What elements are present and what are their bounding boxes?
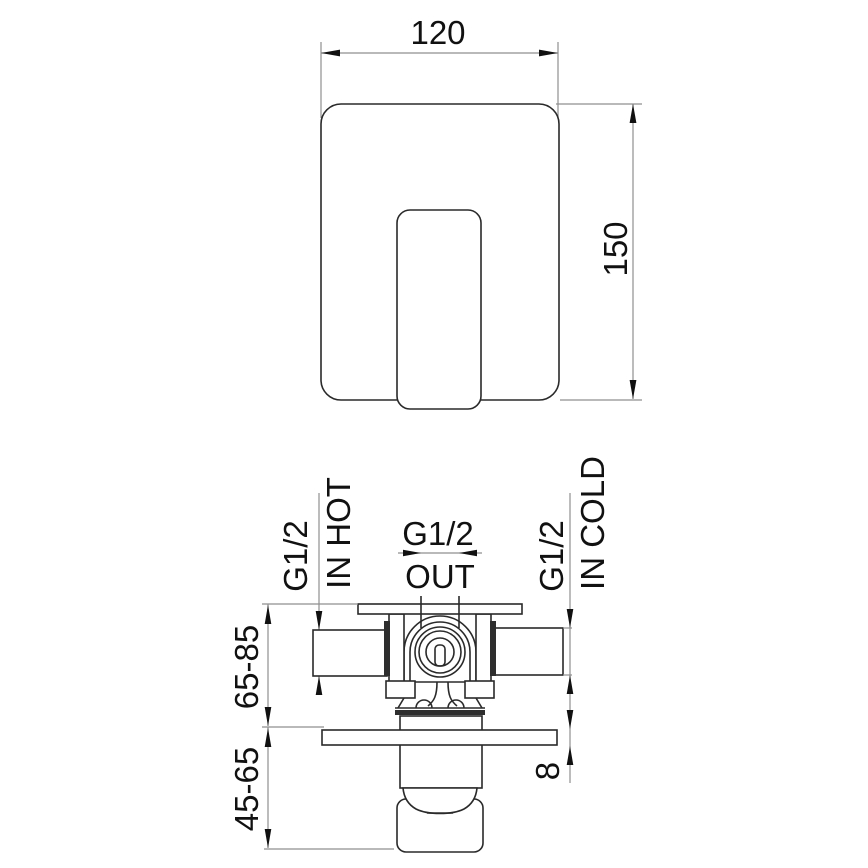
arrowhead-down	[265, 707, 272, 726]
flare-edge-left	[398, 698, 404, 708]
connection-nut-left	[384, 621, 390, 676]
bracket-foot-right	[465, 681, 494, 698]
arrowhead-down	[265, 829, 272, 848]
width-dim-label: 120	[410, 14, 465, 51]
top-view: 120 150	[321, 14, 642, 409]
arrowhead-up	[316, 676, 323, 695]
hot-inlet-label: IN HOT	[320, 477, 357, 589]
connection-nut-right	[490, 621, 496, 676]
cold-inlet-pipe	[494, 628, 563, 675]
cartridge-ring-inner	[426, 638, 454, 666]
bracket-left	[389, 614, 404, 682]
cold-inlet-label: IN COLD	[574, 456, 611, 590]
outlet-thread-label: G1/2	[402, 515, 474, 552]
scallop-right	[448, 700, 464, 708]
install-depth-label: 65-85	[228, 625, 265, 709]
dim-height: 150	[556, 104, 642, 400]
bracket-foot-left	[386, 681, 415, 698]
outlet-label: OUT	[405, 558, 475, 595]
arrowhead-down	[316, 611, 323, 630]
wall-plate-section	[322, 730, 557, 745]
trim-depth-label: 45-65	[228, 747, 265, 831]
mounting-plate	[358, 604, 522, 614]
collar-band	[395, 710, 485, 715]
arrowhead-up	[567, 675, 574, 694]
lever-handle-outline	[397, 210, 481, 409]
bracket-right	[476, 614, 491, 682]
arrowhead-down	[567, 609, 574, 628]
trim-sleeve	[400, 716, 482, 788]
bottom-view: G1/2 IN HOT G1/2 OUT G1/2 IN COLD 8	[228, 456, 611, 852]
arrowhead-bottom	[630, 380, 637, 399]
arrowhead-top	[630, 104, 637, 123]
plate-thickness-label: 8	[529, 762, 566, 780]
arrowhead-up	[265, 728, 272, 747]
mixer-technical-drawing: 120 150 G1/2 IN HOT G1/2 OUT G1/2 IN COL…	[0, 0, 868, 868]
dim-width: 120	[321, 14, 558, 118]
cold-thread-label: G1/2	[533, 520, 570, 592]
hot-inlet-pipe	[313, 630, 387, 676]
arrowhead-up	[265, 605, 272, 624]
flare-edge-right	[476, 698, 482, 708]
arrowhead-right	[539, 50, 558, 57]
arrowhead-down	[567, 710, 574, 729]
valve-body	[313, 596, 572, 852]
arrowhead-up	[567, 746, 574, 765]
height-dim-label: 150	[597, 221, 634, 276]
arrowhead-left	[321, 50, 340, 57]
technical-drawing-canvas: 120 150 G1/2 IN HOT G1/2 OUT G1/2 IN COL…	[0, 0, 868, 868]
hot-thread-label: G1/2	[277, 520, 314, 592]
